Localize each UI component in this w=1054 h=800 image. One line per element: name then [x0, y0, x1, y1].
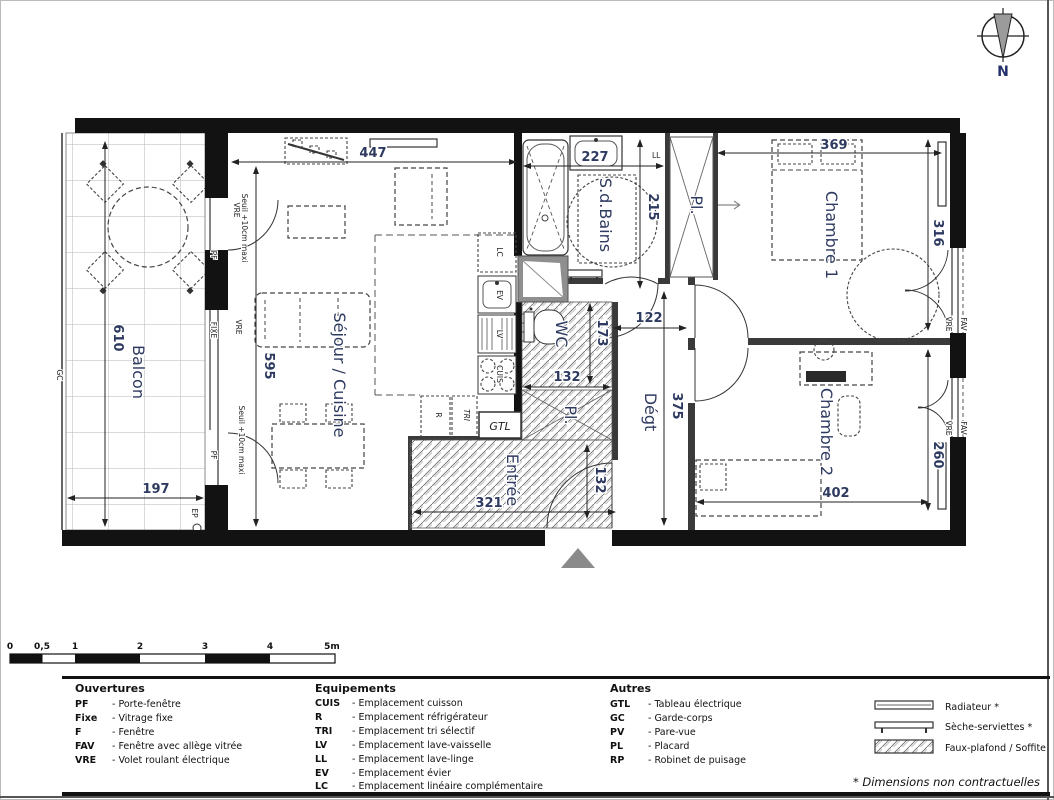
legend-title-ouvertures: Ouvertures	[75, 682, 145, 695]
vre-label-3: VRE	[944, 316, 953, 331]
legend-desc: - Emplacement tri sélectif	[352, 726, 475, 737]
placard1-label: Pl.	[687, 195, 706, 214]
ev-label: EV	[495, 290, 504, 301]
duct-shaft	[518, 256, 568, 302]
legend-desc: - Robinet de puisage	[648, 755, 746, 766]
legend-abbr: LC	[315, 781, 328, 792]
balcon-label: Balcon	[129, 345, 148, 399]
north-label: N	[997, 64, 1009, 80]
fav-label-1: FAV	[959, 317, 968, 331]
radiator-ch1	[938, 142, 946, 206]
legend-desc: - Emplacement lave-vaisselle	[352, 740, 491, 751]
scale-5m: 5m	[324, 642, 340, 652]
sejour-label: Séjour / Cuisine	[330, 312, 349, 437]
legend-desc: - Fenêtre avec allège vitrée	[112, 741, 242, 752]
seuil-label-2: Seuil +10cm maxi	[237, 406, 246, 475]
ep-label: EP	[190, 508, 199, 518]
legend-abbr: LL	[315, 754, 327, 765]
dim-375: 375	[669, 392, 684, 419]
legend-desc: - Porte-fenêtre	[112, 699, 181, 710]
dim-132-entree: 132	[592, 466, 607, 493]
placard-2: Pl.	[522, 390, 612, 440]
degt-label: Dégt	[641, 393, 660, 432]
legend-abbr: GC	[610, 713, 625, 724]
gtl-label: GTL	[489, 420, 510, 433]
legend-desc: - Emplacement évier	[352, 768, 451, 779]
dim-316: 316	[930, 219, 945, 246]
vre-label-2: VRE	[234, 319, 243, 334]
legend-desc: - Emplacement réfrigérateur	[352, 712, 488, 723]
pf-label-1: PF	[209, 251, 218, 260]
legend-abbr: TRI	[315, 726, 332, 737]
soffit-symbol	[875, 740, 933, 753]
dim-610: 610	[110, 324, 125, 351]
dim-260: 260	[930, 441, 945, 468]
scale-3: 3	[202, 642, 208, 652]
gc-label: GC	[55, 369, 64, 380]
legend-abbr: PV	[610, 727, 625, 738]
legend-desc: - Vitrage fixe	[112, 713, 173, 724]
dim-122: 122	[635, 311, 662, 326]
dim-173: 173	[594, 319, 609, 346]
legend-abbr: CUIS	[315, 698, 340, 709]
legend-abbr: F	[75, 727, 82, 738]
scale-2: 2	[137, 642, 143, 652]
radiator-label: Radiateur *	[945, 702, 999, 713]
legend-footnote: * Dimensions non contractuelles	[853, 775, 1040, 789]
scale-05: 0,5	[34, 642, 50, 652]
fav-label-2: FAV	[959, 421, 968, 435]
dim-402: 402	[822, 486, 849, 501]
entree-label: Entrée	[503, 454, 522, 506]
vre-label-4: VRE	[944, 420, 953, 435]
vre-label-1: VRE	[232, 202, 241, 217]
legend-desc: - Placard	[648, 741, 689, 752]
dim-197: 197	[142, 482, 169, 497]
lv-label: LV	[495, 330, 504, 339]
legend-desc: - Tableau électrique	[648, 699, 742, 710]
lc-label: LC	[495, 247, 504, 256]
room-balcon: Balcon GC EP	[55, 133, 209, 532]
dim-321: 321	[475, 496, 502, 511]
dim-595: 595	[261, 352, 276, 379]
scale-0: 0	[7, 642, 13, 652]
legend-abbr: VRE	[75, 755, 96, 766]
legend-abbr: EV	[315, 768, 329, 779]
ll-label: LL	[652, 151, 661, 160]
legend-title-equipements: Equipements	[315, 682, 396, 695]
dim-215: 215	[645, 193, 660, 220]
sdb-label: S.d.Bains	[596, 178, 615, 252]
legend-abbr: R	[315, 712, 323, 723]
legend-abbr: RP	[610, 755, 624, 766]
radiator-symbol	[875, 701, 933, 709]
legend-desc: - Fenêtre	[112, 727, 155, 738]
ch1-label: Chambre 1	[822, 191, 841, 279]
scale-1: 1	[72, 642, 78, 652]
tri-label: TRI	[462, 409, 471, 422]
ch2-label: Chambre 2	[817, 388, 836, 476]
dim-227: 227	[581, 150, 608, 165]
legend-desc: - Garde-corps	[648, 713, 713, 724]
legend-desc: - Pare-vue	[648, 727, 696, 738]
legend-desc: - Emplacement cuisson	[352, 698, 463, 709]
legend-abbr: Fixe	[75, 713, 97, 724]
legend-desc: - Emplacement lave-linge	[352, 754, 474, 765]
plan-canvas: N Balcon GC EP	[0, 0, 1054, 800]
legend-desc: - Volet roulant électrique	[112, 755, 230, 766]
floor-plan-page: N Balcon GC EP	[0, 0, 1054, 800]
scale-4: 4	[267, 642, 273, 652]
dim-132-wc: 132	[553, 370, 580, 385]
dim-369: 369	[820, 138, 847, 153]
fridge-label: R	[434, 412, 443, 417]
legend-abbr: PF	[75, 699, 88, 710]
legend-desc: - Emplacement linéaire complémentaire	[352, 781, 543, 792]
towel-dryer-label: Sèche-serviettes *	[945, 722, 1032, 733]
legend-title-autres: Autres	[610, 682, 651, 695]
fixe-label: FIXE	[209, 322, 218, 339]
cuis-label: CUIS	[495, 365, 504, 383]
pf-label-2: PF	[209, 451, 218, 460]
legend-abbr: GTL	[610, 699, 630, 710]
placard2-label: Pl.	[561, 405, 580, 424]
dim-447: 447	[359, 146, 386, 161]
legend-abbr: FAV	[75, 741, 95, 752]
soffit-label: Faux-plafond / Soffite	[945, 743, 1046, 754]
legend-abbr: LV	[315, 740, 328, 751]
bathtub	[523, 140, 568, 255]
seuil-label-1: Seuil +10cm maxi	[240, 194, 249, 263]
legend-abbr: PL	[610, 741, 623, 752]
room-degt: Dégt	[641, 393, 660, 432]
wc-label: WC	[552, 321, 571, 348]
